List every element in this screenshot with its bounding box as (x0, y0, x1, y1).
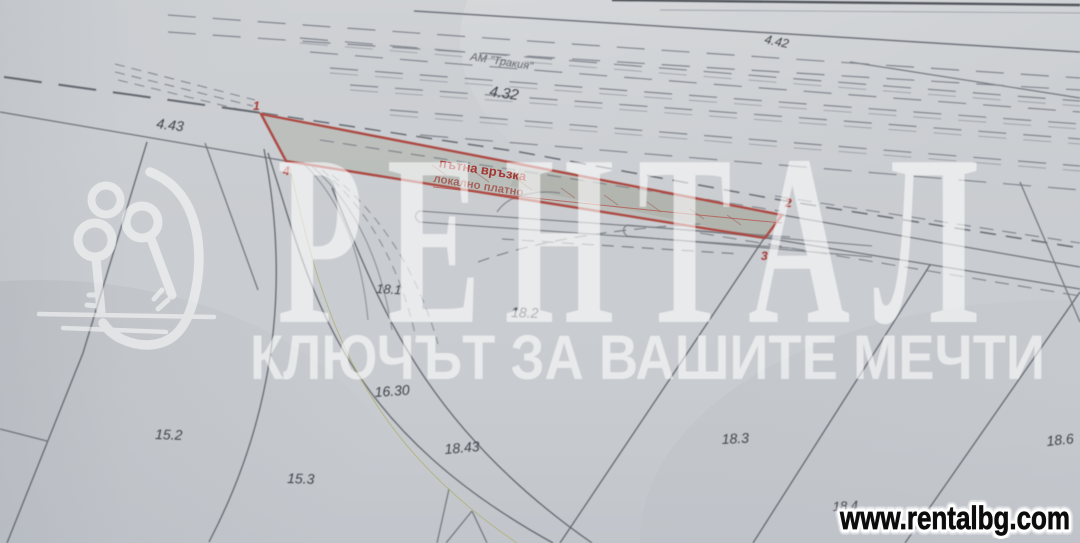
svg-text:КЛЮЧЪТ ЗА ВАШИТЕ МЕЧТИ: КЛЮЧЪТ ЗА ВАШИТЕ МЕЧТИ (250, 323, 1045, 393)
svg-text:4.43: 4.43 (156, 115, 185, 134)
svg-text:18.6: 18.6 (1046, 430, 1075, 449)
svg-text:15.2: 15.2 (155, 426, 183, 443)
svg-text:1: 1 (253, 99, 260, 113)
svg-text:15.3: 15.3 (287, 470, 315, 487)
svg-text:18.3: 18.3 (721, 430, 749, 447)
svg-text:18.43: 18.43 (444, 438, 481, 457)
svg-text:www.rentalbg.com: www.rentalbg.com (839, 500, 1070, 536)
